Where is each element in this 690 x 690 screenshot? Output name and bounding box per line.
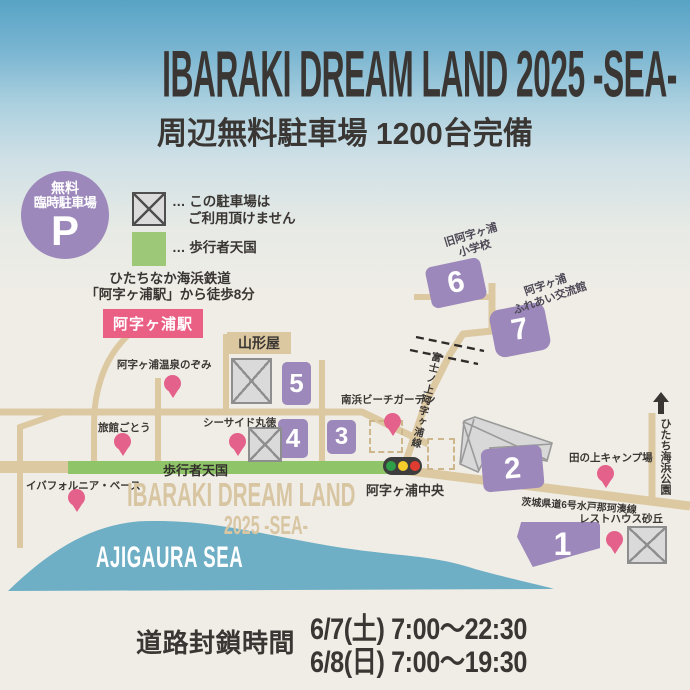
event-watermark: IBARAKI DREAM LAND 2025 -SEA- bbox=[127, 478, 363, 538]
traffic-light-green bbox=[386, 461, 396, 471]
poi-label-ibafornia: イバフォルニア・ベース bbox=[26, 478, 141, 493]
parking-lot-3: 3 bbox=[327, 420, 356, 454]
legend-no-parking-icon bbox=[132, 192, 166, 226]
legend-dots: … bbox=[172, 194, 186, 209]
poi-pin-gotou bbox=[114, 433, 131, 450]
poi-pin-marutoku bbox=[229, 433, 246, 450]
legend-pedestrian-icon bbox=[132, 232, 166, 266]
closed-parking-near-1 bbox=[627, 526, 667, 564]
dashed-area-2 bbox=[427, 438, 455, 470]
poi-pin-resthouse bbox=[606, 531, 623, 548]
access-line1: ひたちなか海浜鉄道 bbox=[55, 271, 285, 287]
traffic-light-icon bbox=[383, 457, 422, 475]
poi-label-marutoku: シーサイド丸徳 bbox=[203, 415, 276, 430]
crossing-label: 阿字ヶ浦中央 bbox=[366, 480, 444, 499]
poi-pin-ibafornia bbox=[68, 489, 85, 506]
closed-parking-near-5 bbox=[231, 358, 272, 404]
parking-lot-2: 2 bbox=[480, 444, 545, 492]
sea-label: AJIGAURA SEA bbox=[96, 541, 243, 575]
legend-pedestrian-text: … 歩行者天国 bbox=[172, 239, 257, 256]
up-arrow-icon bbox=[653, 392, 669, 414]
poi-pin-tanoue bbox=[597, 465, 614, 482]
pedestrian-road bbox=[68, 461, 390, 474]
poi-label-resthouse: レストハウス砂丘 bbox=[579, 511, 663, 526]
parking-lot-4: 4 bbox=[278, 419, 308, 458]
badge-p: P bbox=[51, 211, 79, 251]
page-subtitle: 周辺無料駐車場 1200台完備 bbox=[10, 108, 679, 153]
legend-no-parking-text: … この駐車場は ご利用頂けません bbox=[172, 193, 296, 227]
page-title: IBARAKI DREAM LAND 2025 -SEA- bbox=[162, 36, 528, 112]
poi-label-tanoue: 田の上キャンプ場 bbox=[569, 450, 653, 465]
access-line2: 「阿字ヶ浦駅」から徒歩8分 bbox=[55, 287, 285, 303]
closed-parking-near-4 bbox=[248, 427, 282, 462]
poi-pin-minamihama bbox=[384, 413, 401, 430]
closure-label: 道路封鎖時間 bbox=[136, 623, 295, 660]
station-label: 阿字ヶ浦駅 bbox=[103, 309, 203, 338]
legend-dots2: … bbox=[172, 240, 186, 255]
poi-label-nozomi: 阿字ヶ浦温泉のぞみ bbox=[117, 357, 212, 372]
yamagataya-label: 山形屋 bbox=[227, 332, 291, 354]
badge-line1: 無料 bbox=[51, 180, 79, 196]
traffic-light-red bbox=[410, 461, 420, 471]
closure-time-2: 6/8(日) 7:00～19:30 bbox=[310, 637, 527, 681]
poi-pin-nozomi bbox=[164, 375, 181, 392]
access-info: ひたちなか海浜鉄道 「阿字ヶ浦駅」から徒歩8分 bbox=[55, 271, 285, 302]
parking-map-poster: IBARAKI DREAM LAND 2025 -SEA- 周辺無料駐車場 12… bbox=[0, 0, 690, 690]
seaside-park-label: ひたち海浜公園 bbox=[657, 418, 673, 504]
traffic-light-yellow bbox=[398, 461, 408, 471]
free-parking-badge: 無料 臨時駐車場 P bbox=[21, 171, 109, 259]
poi-label-minamihama: 南浜ビーチガーデン bbox=[341, 392, 436, 407]
parking-lot-5: 5 bbox=[282, 362, 311, 405]
